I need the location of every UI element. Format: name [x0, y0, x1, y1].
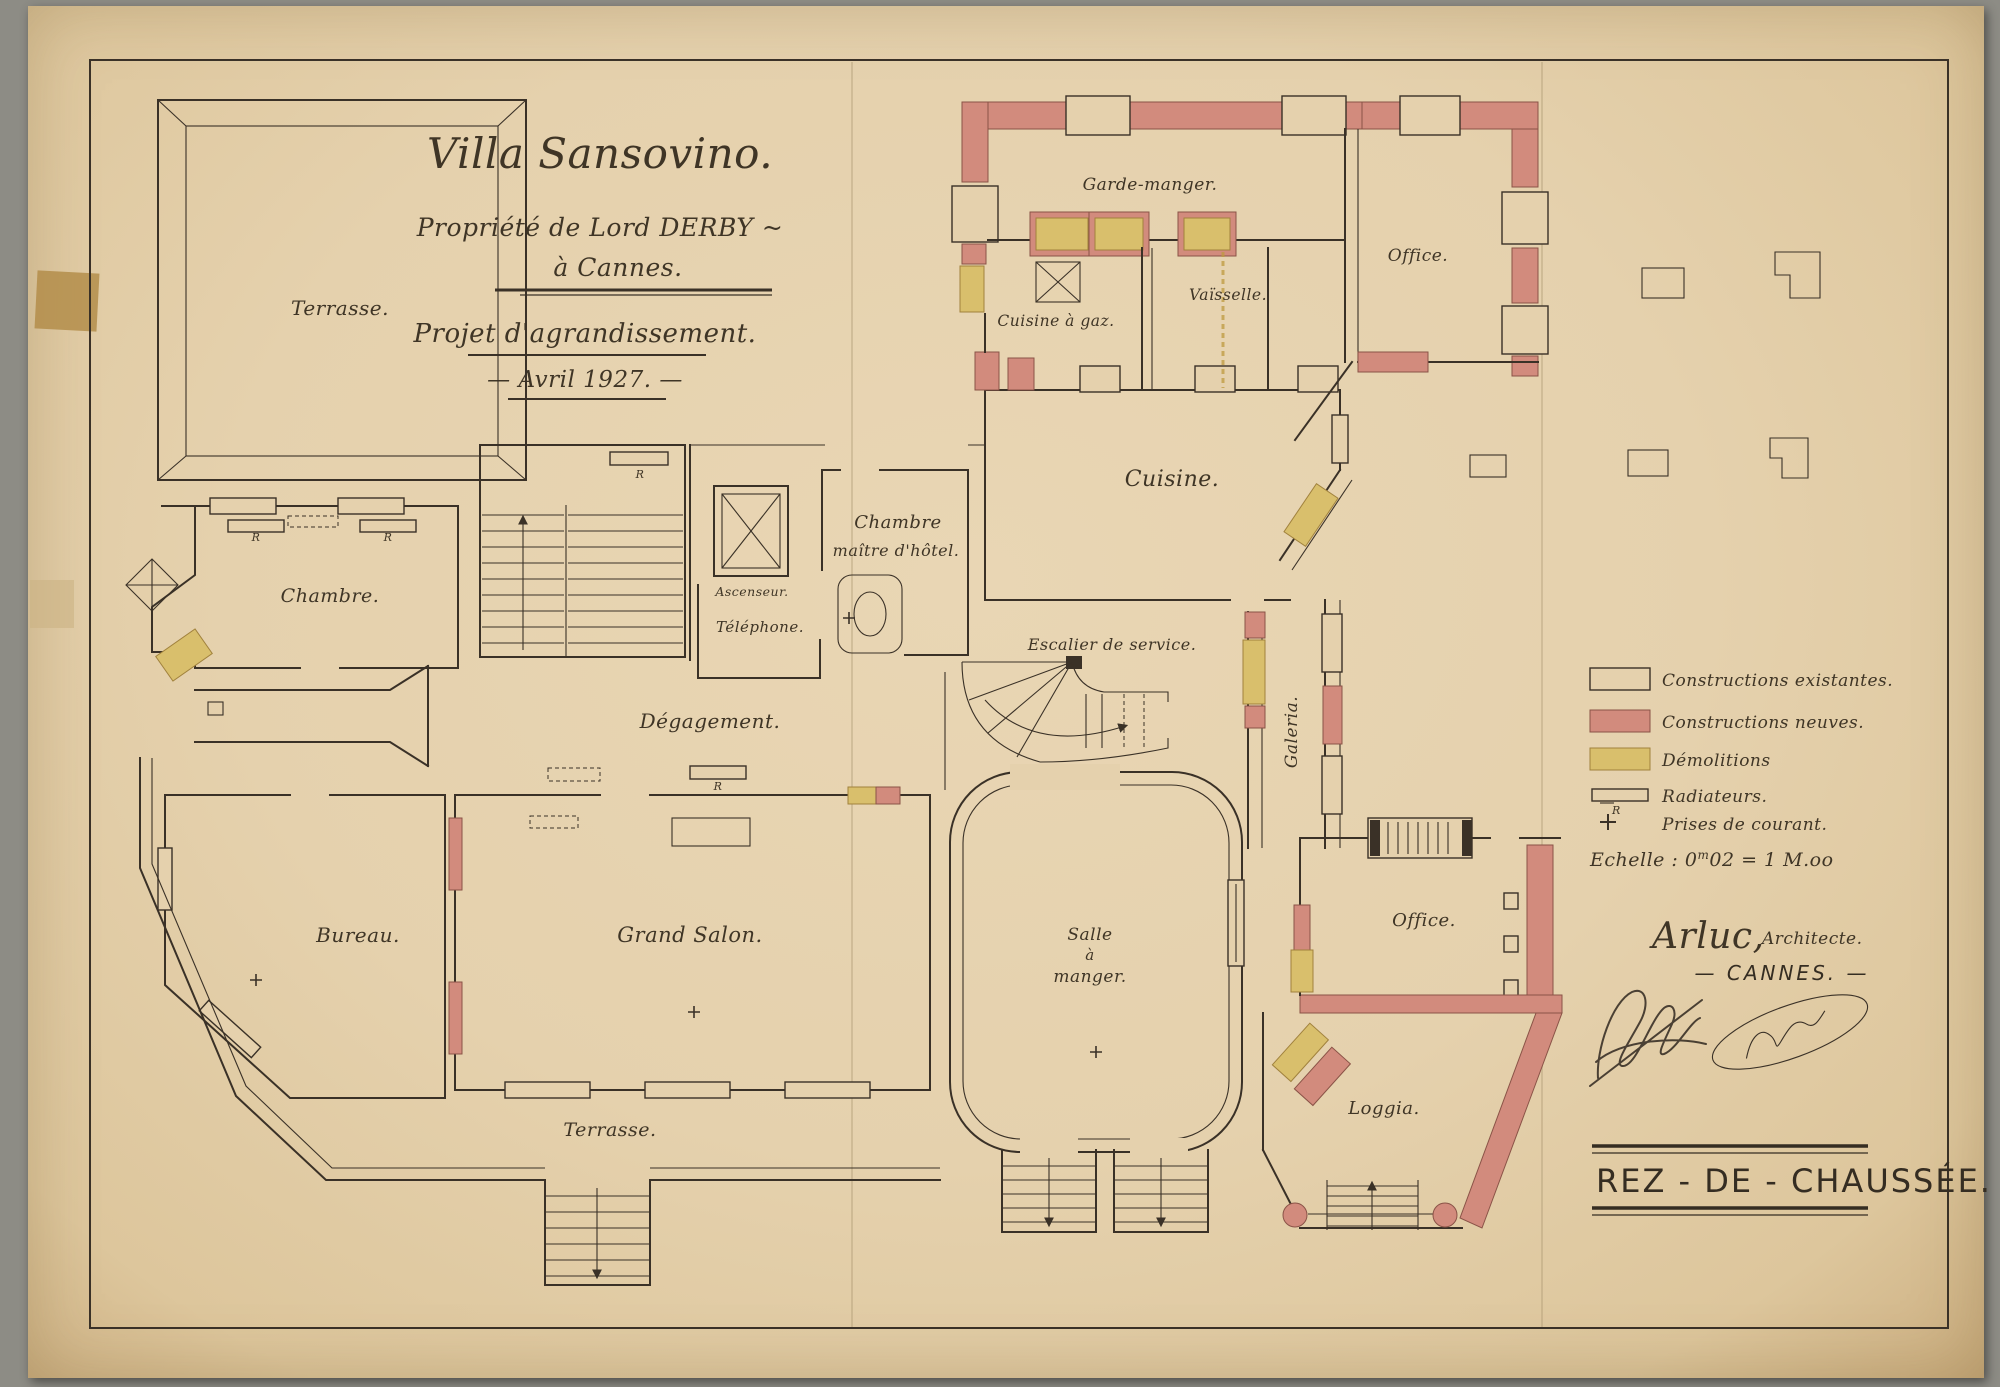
- sheet-border: [90, 60, 1948, 1328]
- new-wall-patch: [1294, 905, 1310, 950]
- power-outlet-mark: [300, 550, 312, 562]
- photographed-drawing: Villa Sansovino. Propriété de Lord DERBY…: [0, 0, 2000, 1387]
- new-wall: [962, 102, 988, 182]
- loggia-steps: [1327, 1180, 1418, 1230]
- dining-steps-left: [1002, 1150, 1096, 1232]
- architect-city: — CANNES. —: [1695, 961, 1870, 985]
- legend-label-radiator: Radiateurs.: [1661, 787, 1767, 807]
- legend-label-existing: Constructions existantes.: [1662, 671, 1893, 691]
- room-label-ascenseur: Ascenseur.: [714, 584, 788, 599]
- room-label-terrasse-sud: Terrasse.: [563, 1119, 656, 1141]
- demolition-patch: [1291, 950, 1313, 992]
- power-outlet-mark: [1090, 1046, 1102, 1058]
- room-label-cuisine: Cuisine.: [1125, 467, 1220, 492]
- legend-label-outlet: Prises de courant.: [1661, 815, 1827, 835]
- demolition-patch: [1284, 484, 1338, 547]
- room-label-galeria: Galeria.: [1282, 696, 1302, 768]
- legend: Constructions existantes. Constructions …: [1589, 668, 1893, 871]
- new-wall: [1512, 248, 1538, 303]
- room-label-office-ne: Office.: [1388, 246, 1448, 266]
- service-staircase: Escalier de service.: [962, 635, 1196, 762]
- new-wall-pier: [449, 982, 462, 1054]
- room-terrasse-sud: Terrasse.: [545, 1119, 657, 1285]
- floor-label: REZ - DE - CHAUSSÉE.: [1596, 1162, 1992, 1200]
- room-label-escalier-service: Escalier de service.: [1027, 635, 1197, 654]
- legend-swatch-radiator: [1592, 789, 1648, 801]
- radiator-letter: R: [635, 468, 645, 481]
- floor-plan-drawing: Villa Sansovino. Propriété de Lord DERBY…: [0, 0, 2000, 1387]
- new-wall-patch: [1358, 352, 1428, 372]
- room-label-grand-salon: Grand Salon.: [617, 923, 762, 947]
- wc-fixture: [838, 575, 902, 653]
- room-label-vaisselle: Vaïsselle.: [1189, 286, 1267, 304]
- legend-radiator-letter: R: [1611, 804, 1621, 817]
- radiator: [690, 766, 746, 779]
- room-bureau: Bureau.: [158, 795, 445, 1098]
- date-line: — Avril 1927. —: [487, 367, 683, 393]
- new-wall-patch: [962, 244, 986, 264]
- room-office-est: Office.: [1291, 818, 1562, 1013]
- room-label-chambre-maitre-1: Chambre: [854, 512, 941, 533]
- room-office-ne: Office.: [1295, 96, 1548, 440]
- architect-block: Arluc, Architecte. — CANNES. —: [1590, 916, 1876, 1086]
- signature-1: [1590, 991, 1706, 1086]
- architect-title: Architecte.: [1760, 929, 1863, 949]
- new-wall-patch: [876, 787, 900, 804]
- demolition-patch: [156, 629, 213, 681]
- tape-mark: [30, 580, 74, 628]
- room-chambre-maitre-hotel: Chambre maître d'hôtel.: [822, 445, 985, 655]
- legend-swatch-new: [1590, 710, 1650, 732]
- room-label-salle-1: Salle: [1067, 925, 1112, 945]
- demolition-patch: [960, 266, 984, 312]
- scale-text-part2: 02 = 1 M.oo: [1709, 849, 1833, 871]
- owner-line: Propriété de Lord DERBY ~: [416, 213, 784, 242]
- room-ascenseur: Ascenseur.: [714, 486, 789, 599]
- scale-superscript: m: [1697, 848, 1709, 862]
- stove-fixture: [1368, 818, 1472, 858]
- room-galeria: Galeria.: [1243, 600, 1342, 848]
- room-salle-a-manger: Salle à manger.: [950, 764, 1244, 1232]
- radiator: [610, 452, 668, 465]
- new-wall-patch: [1008, 358, 1034, 390]
- room-label-garde-manger: Garde-manger.: [1083, 175, 1218, 195]
- new-wall-pier: [449, 818, 462, 890]
- room-label-bureau: Bureau.: [315, 923, 400, 947]
- facade-parapet: [140, 758, 940, 1180]
- furniture: [672, 818, 750, 846]
- demolition-patch: [1095, 218, 1143, 250]
- room-label-degagement: Dégagement.: [639, 709, 781, 733]
- room-cuisine: Cuisine.: [975, 352, 1352, 600]
- radiator-letter: R: [383, 531, 393, 544]
- paper-artifacts: [30, 62, 1542, 1328]
- new-wall: [1460, 1013, 1562, 1228]
- new-wall-patch: [975, 352, 999, 390]
- new-wall-patch: [1323, 686, 1342, 744]
- room-label-salle-3: manger.: [1053, 967, 1126, 987]
- dining-steps-right: [1114, 1150, 1208, 1232]
- new-wall-patch: [1245, 612, 1265, 638]
- room-chambre: R R Chambre.: [126, 498, 458, 766]
- drawing-title: Villa Sansovino.: [427, 129, 773, 178]
- legend-label-new: Constructions neuves.: [1662, 713, 1864, 733]
- project-line: Projet d'agrandissement.: [413, 319, 757, 349]
- column: [1433, 1203, 1457, 1227]
- demolition-patch: [1243, 640, 1265, 704]
- new-wall: [1300, 995, 1562, 1013]
- legend-label-demolition: Démolitions: [1661, 751, 1771, 771]
- column: [1283, 1203, 1307, 1227]
- legend-scale: Echelle : 0m02 = 1 M.oo: [1589, 848, 1834, 871]
- room-grand-salon: Grand Salon.: [445, 787, 930, 1098]
- legend-swatch-existing: [1590, 668, 1650, 690]
- radiator-letter: R: [713, 780, 723, 793]
- stair-direction-arrow: [985, 700, 1125, 736]
- scale-text-part1: Echelle : 0: [1589, 849, 1697, 871]
- floor-title-block: REZ - DE - CHAUSSÉE.: [1592, 1146, 1992, 1215]
- architect-name: Arluc,: [1649, 916, 1765, 957]
- room-label-loggia: Loggia.: [1347, 1098, 1420, 1119]
- power-outlet-mark: [250, 974, 262, 986]
- demolition-patch: [848, 787, 876, 804]
- room-label-chambre: Chambre.: [281, 585, 380, 607]
- title-block: Villa Sansovino. Propriété de Lord DERBY…: [413, 129, 784, 399]
- signature-2: [1704, 980, 1876, 1085]
- new-wall: [1527, 845, 1553, 997]
- power-outlet-mark: [843, 612, 855, 624]
- room-label-chambre-maitre-2: maître d'hôtel.: [833, 541, 960, 560]
- new-wall: [1512, 129, 1538, 187]
- corridor-flue: [195, 666, 428, 766]
- room-label-terrasse-nw: Terrasse.: [291, 296, 389, 320]
- radiator-letter: R: [251, 531, 261, 544]
- room-label-office-est: Office.: [1392, 910, 1456, 931]
- room-label-salle-2: à: [1085, 946, 1094, 964]
- power-outlet-mark: [688, 1006, 700, 1018]
- room-label-telephone: Téléphone.: [716, 618, 804, 636]
- new-wall: [1512, 356, 1538, 376]
- new-wall-patch: [1245, 706, 1265, 728]
- room-loggia: Loggia.: [1263, 1013, 1562, 1230]
- legend-swatch-demolition: [1590, 748, 1650, 770]
- room-label-cuisine-a-gaz: Cuisine à gaz.: [997, 312, 1114, 330]
- room-degagement: Dégagement. R: [300, 550, 945, 793]
- demolition-patch: [1036, 218, 1088, 250]
- city-line: à Cannes.: [553, 253, 682, 282]
- demolition-patch: [1184, 218, 1230, 250]
